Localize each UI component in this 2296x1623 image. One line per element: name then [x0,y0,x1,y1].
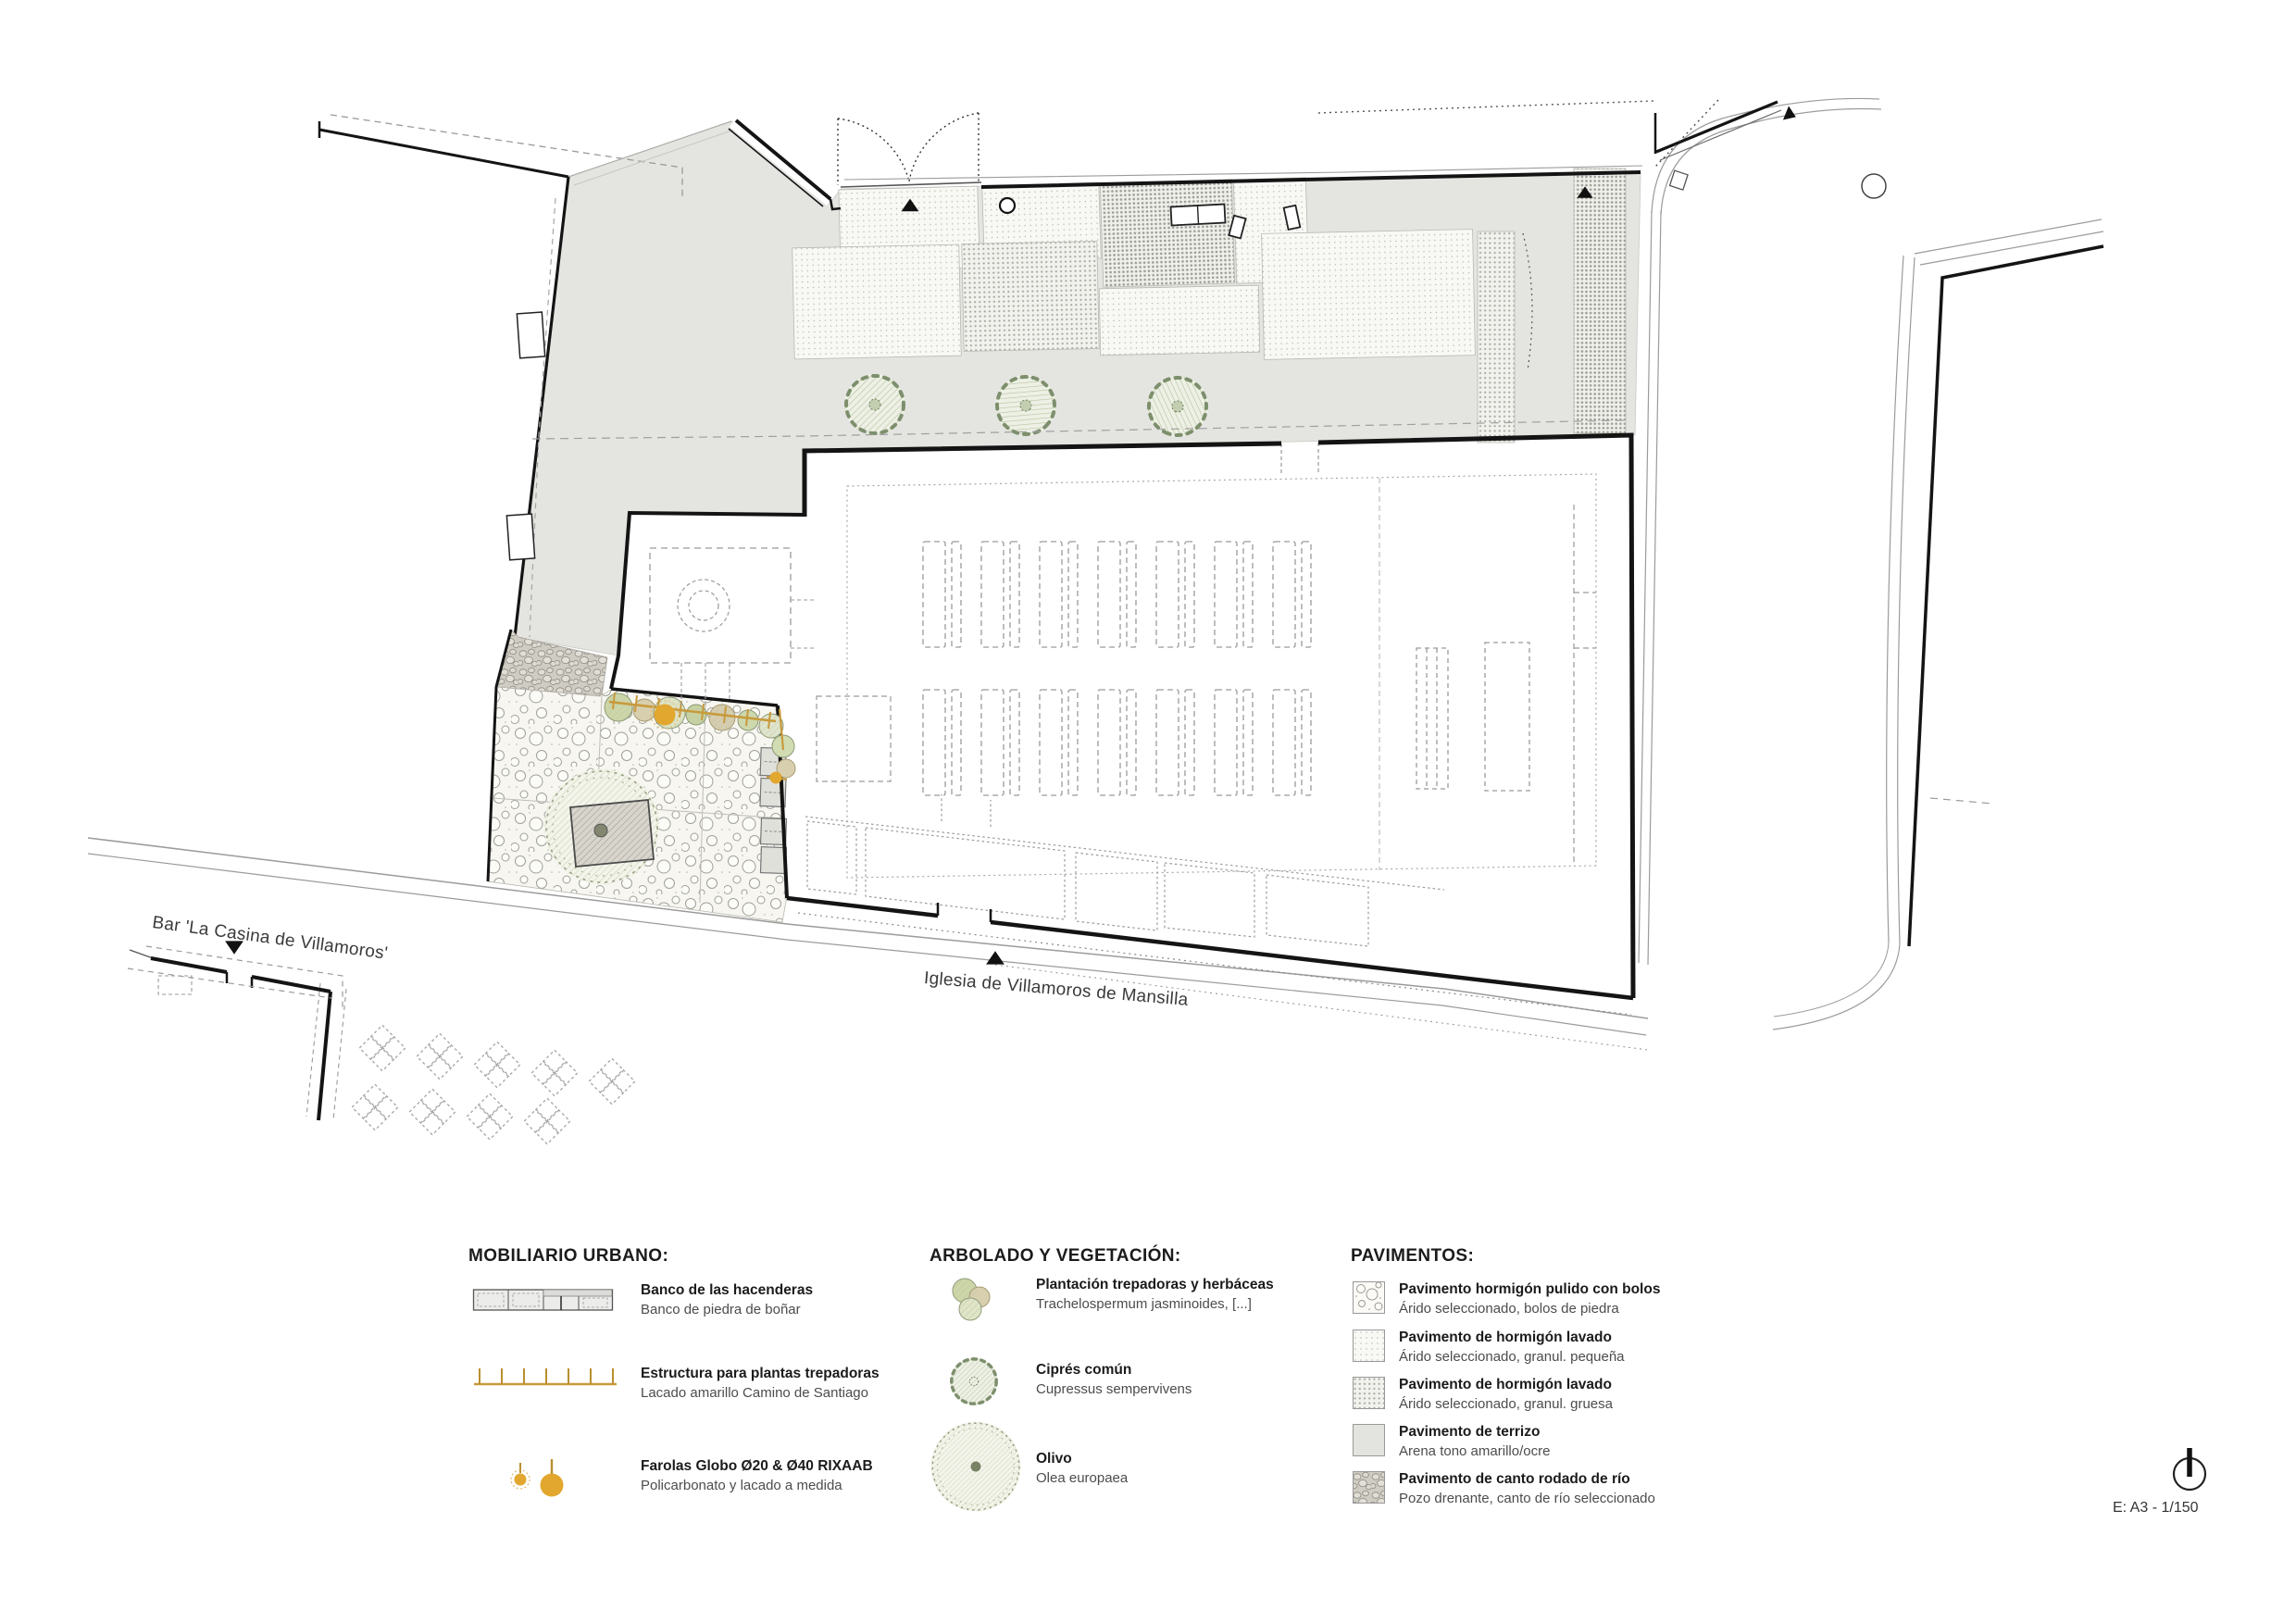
existing-trees-dashed [352,1025,634,1143]
legend-olivo-sub: Olea europaea [1036,1469,1128,1488]
altar-fixtures [1416,643,1529,791]
legend-item-pav-canto: Pavimento de canto rodado de río Pozo dr… [1351,1470,1655,1508]
legend-pav1-sub: Árido seleccionado, bolos de piedra [1399,1300,1660,1318]
legend-item-pav-lavado-grueso: Pavimento de hormigón lavado Árido selec… [1351,1376,1613,1414]
legend-trepadoras-sub: Trachelospermum jasminoides, [...] [1036,1295,1274,1314]
legend-farolas-sub: Policarbonato y lacado a medida [641,1477,873,1495]
swatch-solid-gray [1353,1424,1386,1462]
legend-arbolado-title: ARBOLADO Y VEGETACIÓN: [930,1246,1328,1267]
legend-banco-sub: Banco de piedra de boñar [641,1301,813,1319]
legend-mobiliario: MOBILIARIO URBANO: Banco de las hacender… [468,1246,904,1524]
legend-pavimentos: PAVIMENTOS: Pavimento hormigón pulido co… [1351,1246,1814,1542]
north-arrow-icon [2157,1433,2222,1503]
church-label-marker [986,951,1004,964]
legend-pav3-sub: Árido seleccionado, granul. gruesa [1399,1395,1613,1414]
legend-cipres-title: Ciprés común [1036,1361,1192,1380]
legend-estructura-title: Estructura para plantas trepadoras [641,1365,880,1384]
legend-arbolado: ARBOLADO Y VEGETACIÓN: Plantación trepad… [930,1246,1328,1542]
climber-cluster-icon [946,1276,1005,1332]
legend-pav5-sub: Pozo drenante, canto de río seleccionado [1399,1490,1655,1508]
swatch-dots-coarse [1353,1377,1386,1415]
scale-note: E: A3 - 1/150 [2113,1500,2199,1517]
swatch-bolos [1353,1281,1386,1319]
legend-item-banco: Banco de las hacenderas Banco de piedra … [468,1281,813,1319]
legend-item-pav-terrizo: Pavimento de terrizo Arena tono amarillo… [1351,1423,1550,1461]
legend-item-pav-lavado-fino: Pavimento de hormigón lavado Árido selec… [1351,1329,1625,1367]
legend-pav2-title: Pavimento de hormigón lavado [1399,1329,1625,1348]
olive-canopy-icon [930,1420,1022,1517]
legend-item-cipres: Ciprés común Cupressus sempervivens [930,1350,1192,1399]
cypress-canopy-icon [942,1350,1005,1417]
legend-banco-title: Banco de las hacenderas [641,1281,813,1301]
climber-trellis-icon [472,1365,618,1395]
legend-pav3-title: Pavimento de hormigón lavado [1399,1376,1613,1395]
legend-pav4-sub: Arena tono amarillo/ocre [1399,1442,1550,1461]
swatch-pebbles [1353,1471,1386,1509]
globe-lamps-icon [505,1457,580,1508]
bar-building [128,946,346,1120]
legend-pav5-title: Pavimento de canto rodado de río [1399,1470,1655,1490]
church-pews [923,542,1311,795]
legend-mobiliario-title: MOBILIARIO URBANO: [468,1246,904,1267]
legend-item-estructura: Estructura para plantas trepadoras Lacad… [468,1365,880,1403]
swatch-dots-fine [1353,1330,1386,1367]
legend-pavimentos-title: PAVIMENTOS: [1351,1246,1814,1267]
legend-pav4-title: Pavimento de terrizo [1399,1423,1550,1442]
legend-olivo-title: Olivo [1036,1450,1128,1469]
legend-estructura-sub: Lacado amarillo Camino de Santiago [641,1384,880,1403]
legend-pav2-sub: Árido seleccionado, granul. pequeña [1399,1348,1625,1367]
legend-pav1-title: Pavimento hormigón pulido con bolos [1399,1280,1660,1300]
legend-item-trepadoras: Plantación trepadoras y herbáceas Trache… [930,1276,1274,1314]
stone-bench-plan-icon [472,1283,618,1321]
legend-cipres-sub: Cupressus sempervivens [1036,1380,1192,1399]
legend-item-olivo: Olivo Olea europaea [930,1420,1128,1488]
legend-farolas-title: Farolas Globo Ø20 & Ø40 RIXAAB [641,1457,873,1477]
legend-trepadoras-title: Plantación trepadoras y herbáceas [1036,1276,1274,1295]
legend-item-farolas: Farolas Globo Ø20 & Ø40 RIXAAB Policarbo… [468,1457,873,1495]
south-galleries [805,794,1444,946]
plan-sheet: Bar 'La Casina de Villamoros' Iglesia de… [0,0,2296,1623]
legend-item-pav-bolos: Pavimento hormigón pulido con bolos Árid… [1351,1280,1660,1318]
